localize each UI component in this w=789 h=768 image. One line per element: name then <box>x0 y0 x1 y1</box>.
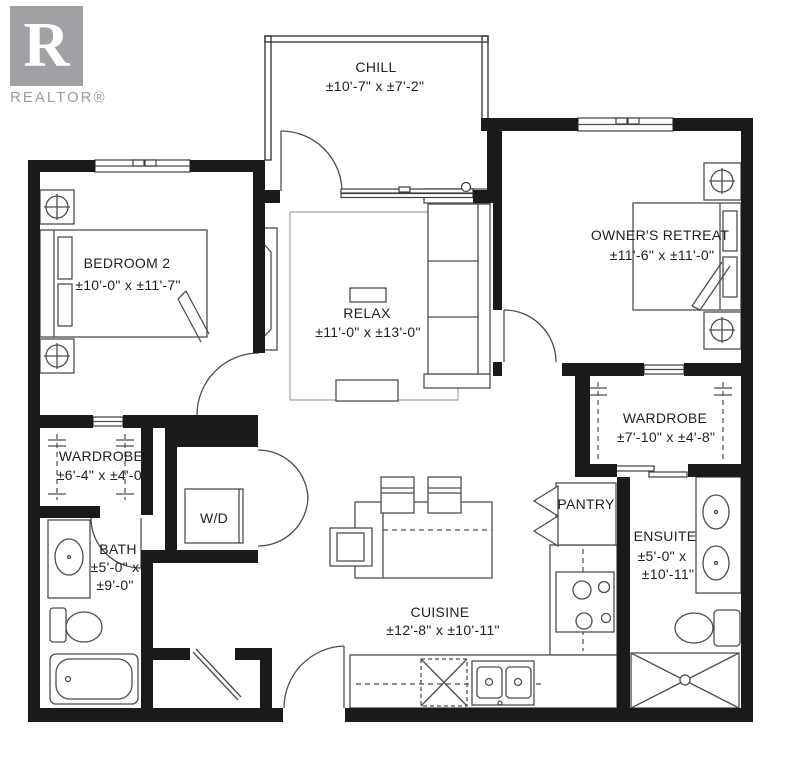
balcony-door-swing <box>281 131 342 192</box>
room-dims-ensuite-2: ±10'-11" <box>642 566 695 582</box>
room-label-ensuite: ENSUITE <box>634 528 697 544</box>
drain-icon <box>680 675 690 685</box>
relax-furniture <box>336 189 490 401</box>
kitchen-island <box>355 502 492 578</box>
room-dims-wardrobe-right: ±7'-10" x ±4'-8" <box>617 429 716 445</box>
room-label-laundry: W/D <box>200 510 228 526</box>
room-label-bedroom2: BEDROOM 2 <box>84 255 171 271</box>
chair <box>330 528 372 566</box>
room-dims-chill: ±10'-7" x ±7'-2" <box>326 78 425 94</box>
room-dims-bath-2: ±9'-0" <box>96 577 133 593</box>
room-label-wardrobe-right: WARDROBE <box>623 410 707 426</box>
toilet-bowl <box>66 612 102 642</box>
bar-stool <box>381 477 414 513</box>
toilet-bowl <box>675 613 713 643</box>
side-table <box>424 374 490 388</box>
room-dims-cuisine: ±12'-8" x ±10'-11" <box>386 622 500 638</box>
pillow <box>58 284 72 326</box>
door-handle-icon <box>462 183 471 192</box>
bifold-door-icon <box>534 516 558 546</box>
sliding-door <box>341 194 473 198</box>
room-label-cuisine: CUISINE <box>411 604 470 620</box>
toilet-tank <box>714 610 740 646</box>
entry-closet-door-leaf <box>193 649 241 700</box>
floor-plan-canvas: CHILL ±10'-7" x ±7'-2" BEDROOM 2 ±10'-0"… <box>0 0 789 768</box>
laundry-door-swing <box>258 450 308 500</box>
room-dims-wardrobe-left: ±6'-4" x ±4'-0" <box>57 467 147 483</box>
room-dims-ensuite-1: ±5'-0" x <box>638 548 687 564</box>
room-dims-bedroom2: ±10'-0" x ±11'-7" <box>75 277 181 293</box>
bypass-door <box>649 472 687 477</box>
balcony-rail <box>265 36 488 160</box>
room-label-wardrobe-left: WARDROBE <box>59 448 143 464</box>
laundry-door-swing <box>258 496 308 546</box>
room-dims-relax: ±11'-0" x ±13'-0" <box>315 324 421 340</box>
room-label-bath: BATH <box>99 541 137 557</box>
room-label-relax: RELAX <box>343 305 391 321</box>
bathtub <box>50 654 138 704</box>
bedroom2-door-swing <box>197 353 259 415</box>
room-dims-bath-1: ±5'-0" x <box>91 559 140 575</box>
ensuite-vanity <box>696 477 741 593</box>
entry-door-swing <box>284 646 344 708</box>
room-label-owners-retreat: OWNER'S RETREAT <box>591 227 730 243</box>
pillow <box>723 257 737 297</box>
bifold-door-icon <box>534 486 558 516</box>
sofa <box>428 204 490 374</box>
toilet-tank <box>50 608 66 642</box>
room-dims-owners-retreat: ±11'-6" x ±11'-0" <box>610 247 715 263</box>
ensuite-furniture <box>631 477 741 708</box>
pantry-cabinet <box>556 483 616 545</box>
room-label-pantry: PANTRY <box>557 496 615 512</box>
media-shelf <box>350 288 386 302</box>
owners-door-swing <box>504 310 556 362</box>
room-label-chill: CHILL <box>355 59 396 75</box>
bar-stool <box>428 477 461 513</box>
floor-plan-page: R REALTOR® <box>0 0 789 768</box>
coffee-table <box>336 380 398 401</box>
pillow <box>58 237 72 279</box>
bypass-door <box>616 466 654 471</box>
